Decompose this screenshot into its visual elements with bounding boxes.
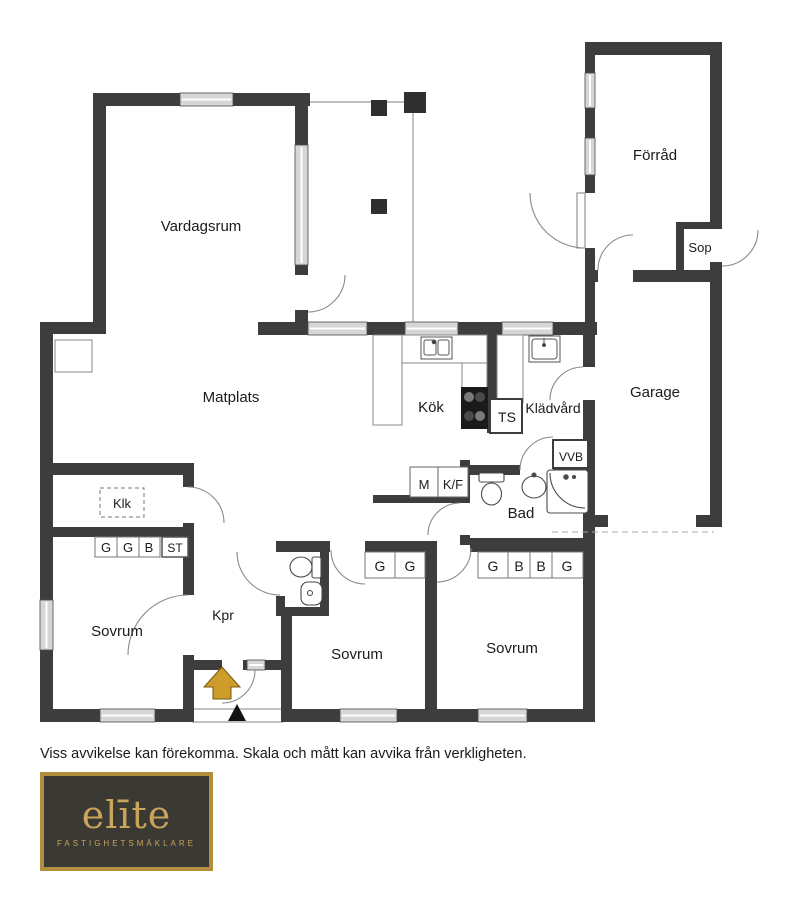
- sink-icon-wc: [301, 582, 322, 605]
- label-sop: Sop: [688, 240, 711, 255]
- door-arc-sovrum-right: [437, 548, 471, 582]
- label-garage: Garage: [630, 384, 680, 401]
- closet-label: G: [101, 540, 111, 555]
- label-ts: TS: [498, 409, 516, 425]
- label-bad: Bad: [508, 505, 535, 522]
- closet-label: B: [514, 558, 523, 574]
- closet-label: G: [488, 558, 499, 574]
- label-sovrum-left: Sovrum: [91, 623, 143, 640]
- label-vardagsrum: Vardagsrum: [161, 218, 242, 235]
- floorplan-drawing: Vardagsrum Matplats Kök TS Klädvård VVB …: [0, 0, 800, 745]
- dashed-lines: [100, 339, 714, 532]
- label-sovrum-mid: Sovrum: [331, 646, 383, 663]
- closet-label: G: [375, 558, 386, 574]
- door-arc-klk: [188, 487, 224, 523]
- bathtub-icon: [547, 470, 588, 513]
- label-matplats: Matplats: [203, 389, 260, 406]
- brand-logo: elīte FASTIGHETSMÄKLARE: [40, 772, 213, 871]
- closet-label: G: [405, 558, 416, 574]
- door-arc-kladvard-hall: [520, 437, 553, 470]
- door-swings: [128, 193, 758, 703]
- door-arc-sovrum-mid: [331, 550, 365, 584]
- wall-niche: [55, 340, 92, 372]
- label-kpr: Kpr: [212, 607, 234, 623]
- label-m: M: [419, 477, 430, 492]
- toilet-icon-bad: [479, 473, 504, 505]
- brand-tagline: FASTIGHETSMÄKLARE: [57, 839, 196, 848]
- laundry-sink-icon: [529, 336, 560, 362]
- floorplan-page: Vardagsrum Matplats Kök TS Klädvård VVB …: [0, 0, 800, 917]
- closet-label: G: [123, 540, 133, 555]
- label-kladvard: Klädvård: [525, 400, 580, 416]
- laundry-counter: [497, 335, 523, 403]
- label-st: ST: [167, 541, 183, 555]
- label-sovrum-right: Sovrum: [486, 640, 538, 657]
- door-arc-vardagsrum-terrace: [308, 275, 345, 312]
- closet-label: B: [145, 540, 154, 555]
- disclaimer-text: Viss avvikelse kan förekomma. Skala och …: [40, 746, 527, 762]
- kitchen-peninsula: [373, 335, 402, 425]
- entrance-arrow-icon: [204, 667, 240, 699]
- door-arc-forrad: [598, 235, 633, 270]
- door-arc-garage-kladvard: [550, 367, 583, 400]
- label-vvb: VVB: [559, 450, 583, 464]
- toilet-icon-wc: [290, 557, 321, 578]
- door-arc-sop: [722, 230, 758, 266]
- brand-name: elīte: [82, 795, 172, 835]
- door-leaf-walkway: [577, 193, 585, 248]
- kitchen-sink-icon: [421, 337, 452, 359]
- terrace-pillars: [371, 92, 426, 214]
- closet-label: B: [536, 558, 545, 574]
- wc-fixtures: [290, 557, 322, 605]
- label-klk: Klk: [113, 496, 132, 511]
- label-kok: Kök: [418, 399, 444, 416]
- closet-label: G: [562, 558, 573, 574]
- label-forrad: Förråd: [633, 147, 677, 164]
- door-arc-bad: [428, 503, 460, 535]
- label-kf: K/F: [443, 477, 463, 492]
- door-arc-wc: [237, 552, 280, 595]
- stove-icon: [461, 387, 488, 429]
- sink-icon-bad: [522, 473, 546, 498]
